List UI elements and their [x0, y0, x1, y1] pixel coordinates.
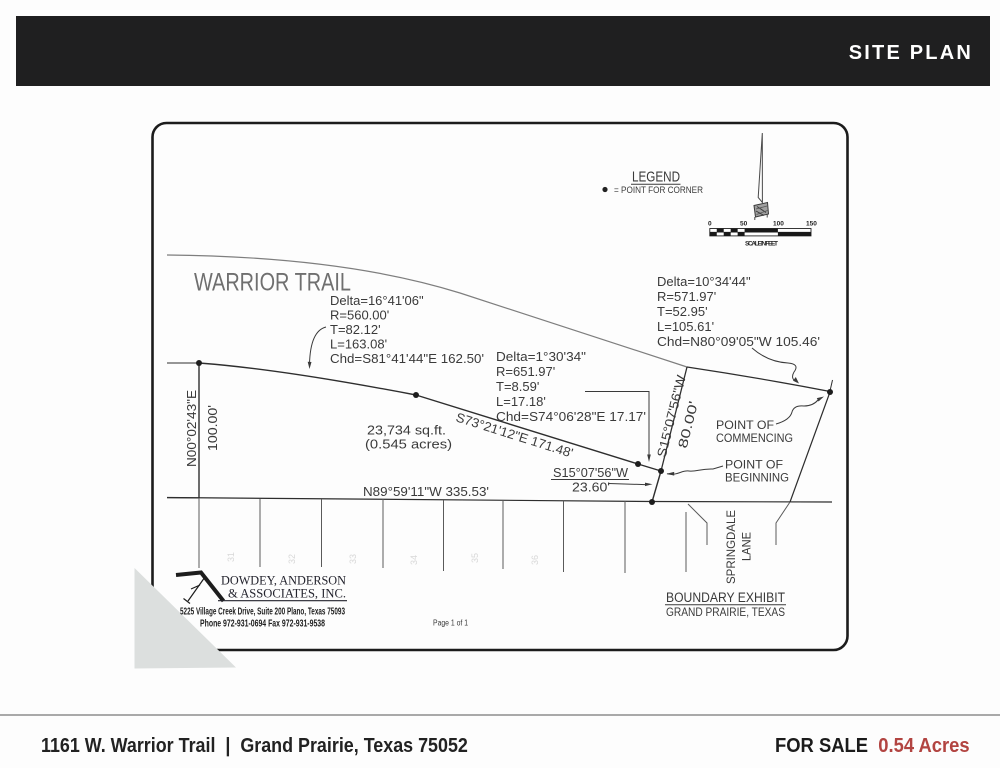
svg-text:150: 150	[806, 221, 817, 228]
svg-text:Delta=16°41'06": Delta=16°41'06"	[330, 293, 424, 308]
svg-text:T=8.59': T=8.59'	[496, 379, 539, 394]
svg-text:33: 33	[348, 554, 358, 564]
svg-text:Phone 972-931-0694 Fax 97: Phone 972-931-0694 Fax 972-931-9538	[200, 619, 325, 630]
svg-text:50: 50	[740, 221, 748, 228]
svg-text:S15°07'56"W: S15°07'56"W	[553, 465, 629, 480]
svg-text:32: 32	[287, 554, 297, 564]
svg-text:Chd=S81°41'44"E 162.50': Chd=S81°41'44"E 162.50'	[330, 351, 484, 366]
svg-text:DOWDEY, ANDERSON: DOWDEY, ANDERSON	[221, 574, 346, 588]
svg-text:L=17.18': L=17.18'	[496, 394, 546, 409]
svg-text:5225 Village Creek Drive, Suit: 5225 Village Creek Drive, Suite 200 Plan…	[180, 607, 345, 618]
svg-text:POINT OF: POINT OF	[716, 420, 774, 432]
svg-text:SPRINGDALE: SPRINGDALE	[724, 510, 738, 584]
svg-text:Chd=N80°09'05"W 105.46': Chd=N80°09'05"W 105.46'	[657, 334, 820, 349]
svg-text:POINT OF: POINT OF	[725, 460, 783, 472]
svg-text:23.60': 23.60'	[572, 480, 610, 495]
svg-text:34: 34	[409, 555, 419, 565]
svg-text:R=571.97': R=571.97'	[657, 289, 716, 304]
svg-text:SCALE IN FEET: SCALE IN FEET	[745, 241, 778, 248]
svg-text:R=651.97': R=651.97'	[496, 364, 555, 379]
svg-text:COMMENCING: COMMENCING	[716, 433, 793, 445]
svg-text:Page 1 of 1: Page 1 of 1	[433, 619, 468, 628]
svg-text:36: 36	[530, 555, 540, 565]
svg-text:0: 0	[708, 221, 712, 228]
svg-text:Delta=1°30'34": Delta=1°30'34"	[496, 349, 586, 364]
svg-text:LANE: LANE	[740, 532, 754, 561]
svg-text:L=163.08': L=163.08'	[330, 337, 387, 352]
svg-text:100: 100	[773, 221, 784, 228]
svg-text:23,734 sq.ft.: 23,734 sq.ft.	[367, 423, 446, 438]
svg-text:R=560.00': R=560.00'	[330, 308, 389, 323]
svg-text:WARRIOR TRAIL: WARRIOR TRAIL	[194, 269, 351, 297]
svg-text:T=82.12': T=82.12'	[330, 322, 381, 337]
svg-text:N89°59'11"W 335.53': N89°59'11"W 335.53'	[363, 484, 489, 499]
svg-text:N00°02'43"E: N00°02'43"E	[184, 390, 199, 467]
svg-text:LEGEND: LEGEND	[632, 169, 680, 186]
svg-text:(0.545 acres): (0.545 acres)	[365, 437, 452, 452]
svg-text:Delta=10°34'44": Delta=10°34'44"	[657, 274, 751, 289]
svg-text:GRAND PRAIRIE, TEXAS: GRAND PRAIRIE, TEXAS	[666, 607, 785, 619]
svg-text:Chd=S74°06'28"E 17.17': Chd=S74°06'28"E 17.17'	[496, 409, 646, 424]
svg-text:31: 31	[226, 552, 236, 562]
svg-text:35: 35	[470, 553, 480, 563]
svg-text:= POINT FOR CORNER: = POINT FOR CORNER	[614, 185, 703, 195]
svg-text:& ASSOCIATES, INC.: & ASSOCIATES, INC.	[228, 587, 346, 601]
svg-text:BOUNDARY EXHIBIT: BOUNDARY EXHIBIT	[666, 590, 785, 605]
svg-text:BEGINNING: BEGINNING	[725, 473, 789, 485]
svg-text:100.00': 100.00'	[205, 405, 220, 451]
svg-text:T=52.95': T=52.95'	[657, 304, 708, 319]
svg-text:L=105.61': L=105.61'	[657, 319, 714, 334]
